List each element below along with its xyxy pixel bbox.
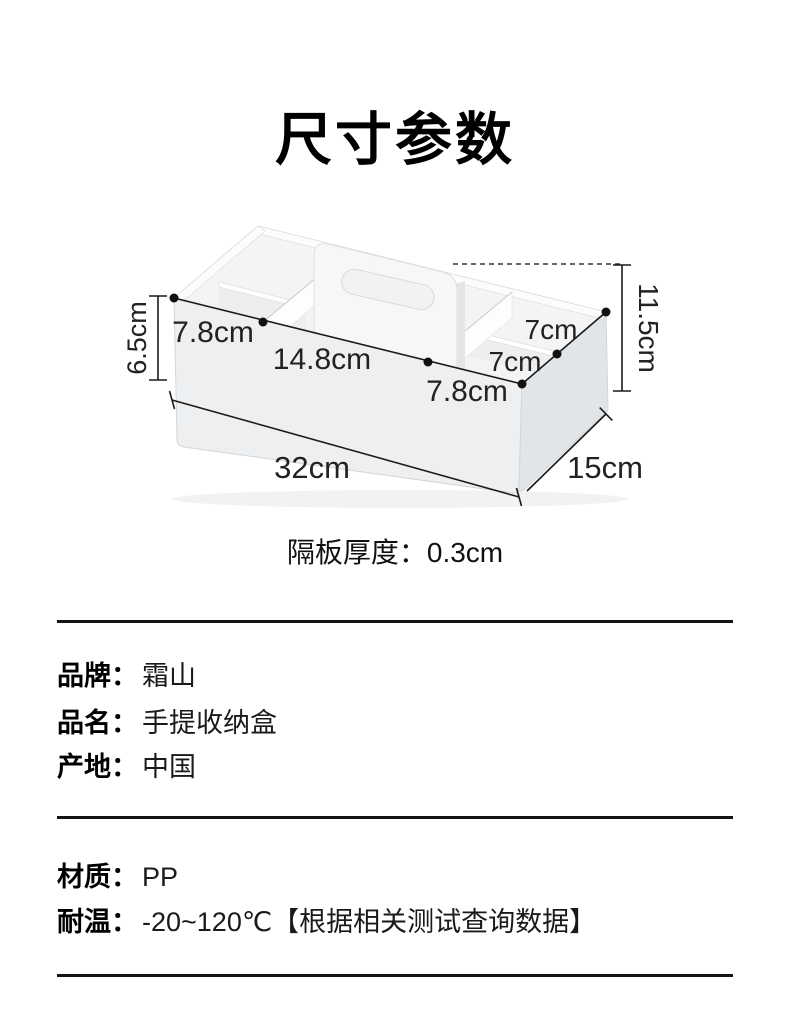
dim-front-left: 7.8cm <box>172 316 254 349</box>
height-total-measure <box>613 265 631 391</box>
box-shadow <box>172 490 628 508</box>
size-diagram: 6.5cm 11.5cm 7.8cm 14.8cm 7cm 7cm 7.8cm … <box>0 225 790 515</box>
dim-right-back: 7cm <box>525 314 578 345</box>
spec-label: 品牌： <box>57 661 138 691</box>
spec-row-product-name: 品名：手提收纳盒 <box>57 708 277 739</box>
spec-value: 霜山 <box>142 661 196 691</box>
dim-height-total: 11.5cm <box>633 283 664 373</box>
dim-depth: 15cm <box>567 450 643 485</box>
dim-length: 32cm <box>274 450 350 485</box>
partition-thickness-note: 隔板厚度：0.3cm <box>0 531 790 571</box>
spec-value: 手提收纳盒 <box>142 708 277 738</box>
divider-line-bottom <box>57 974 733 977</box>
spec-row-temperature: 耐温：-20~120℃【根据相关测试查询数据】 <box>57 907 596 938</box>
product-spec-page: { "page": { "title": "尺寸参数", "background… <box>0 0 790 1012</box>
spec-value: -20~120℃【根据相关测试查询数据】 <box>142 907 596 937</box>
dim-right-front: 7cm <box>489 346 542 377</box>
spec-value: PP <box>142 862 178 892</box>
partition-note-label: 隔板厚度： <box>287 537 427 568</box>
spec-label: 品名： <box>57 708 138 738</box>
dim-front-right: 7.8cm <box>426 375 508 408</box>
spec-row-material: 材质：PP <box>57 862 178 893</box>
handle-side-edge <box>457 281 465 372</box>
divider-line-middle <box>57 816 733 819</box>
dim-front-middle: 14.8cm <box>273 343 371 376</box>
divider-line-top <box>57 620 733 623</box>
spec-label: 材质： <box>57 862 138 892</box>
spec-row-brand: 品牌：霜山 <box>57 661 196 692</box>
spec-value: 中国 <box>142 752 196 782</box>
spec-label: 耐温： <box>57 907 138 937</box>
page-title: 尺寸参数 <box>0 94 790 176</box>
spec-label: 产地： <box>57 752 138 782</box>
partition-note-value: 0.3cm <box>427 537 503 568</box>
spec-row-origin: 产地：中国 <box>57 752 196 783</box>
dim-height-front: 6.5cm <box>122 301 152 375</box>
